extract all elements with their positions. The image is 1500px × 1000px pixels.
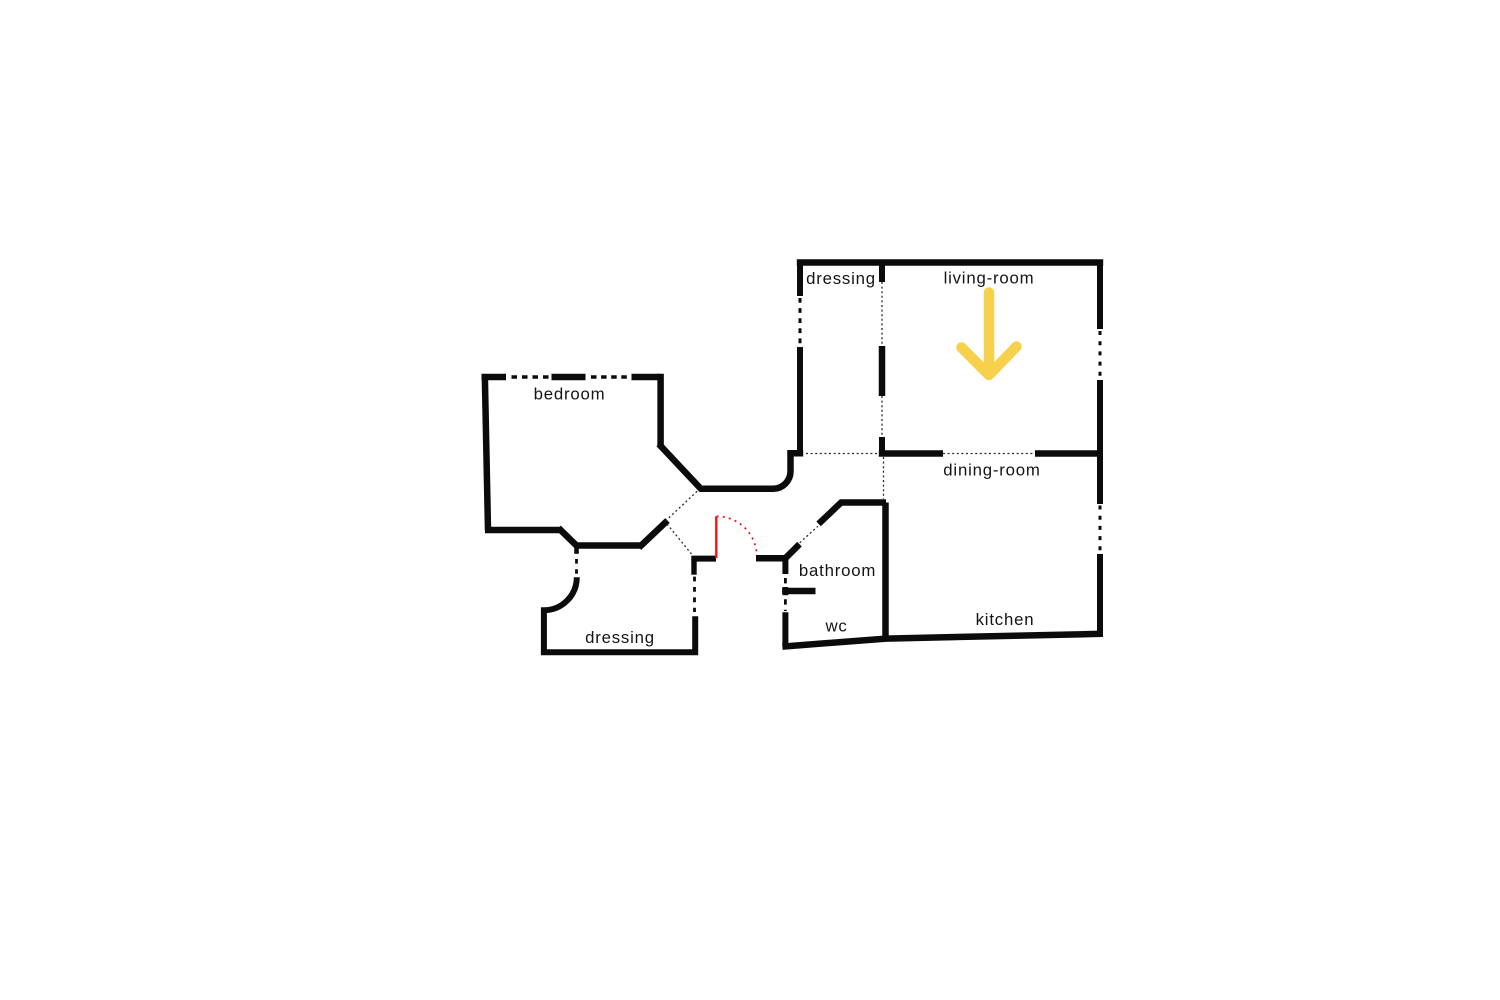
svg-text:dining-room: dining-room xyxy=(943,461,1040,480)
svg-text:living-room: living-room xyxy=(944,269,1035,288)
svg-text:dressing: dressing xyxy=(806,269,876,288)
svg-text:bedroom: bedroom xyxy=(534,385,606,404)
svg-text:kitchen: kitchen xyxy=(976,610,1035,629)
svg-text:wc: wc xyxy=(824,617,847,636)
svg-text:dressing: dressing xyxy=(585,628,655,647)
svg-text:bathroom: bathroom xyxy=(799,561,876,580)
